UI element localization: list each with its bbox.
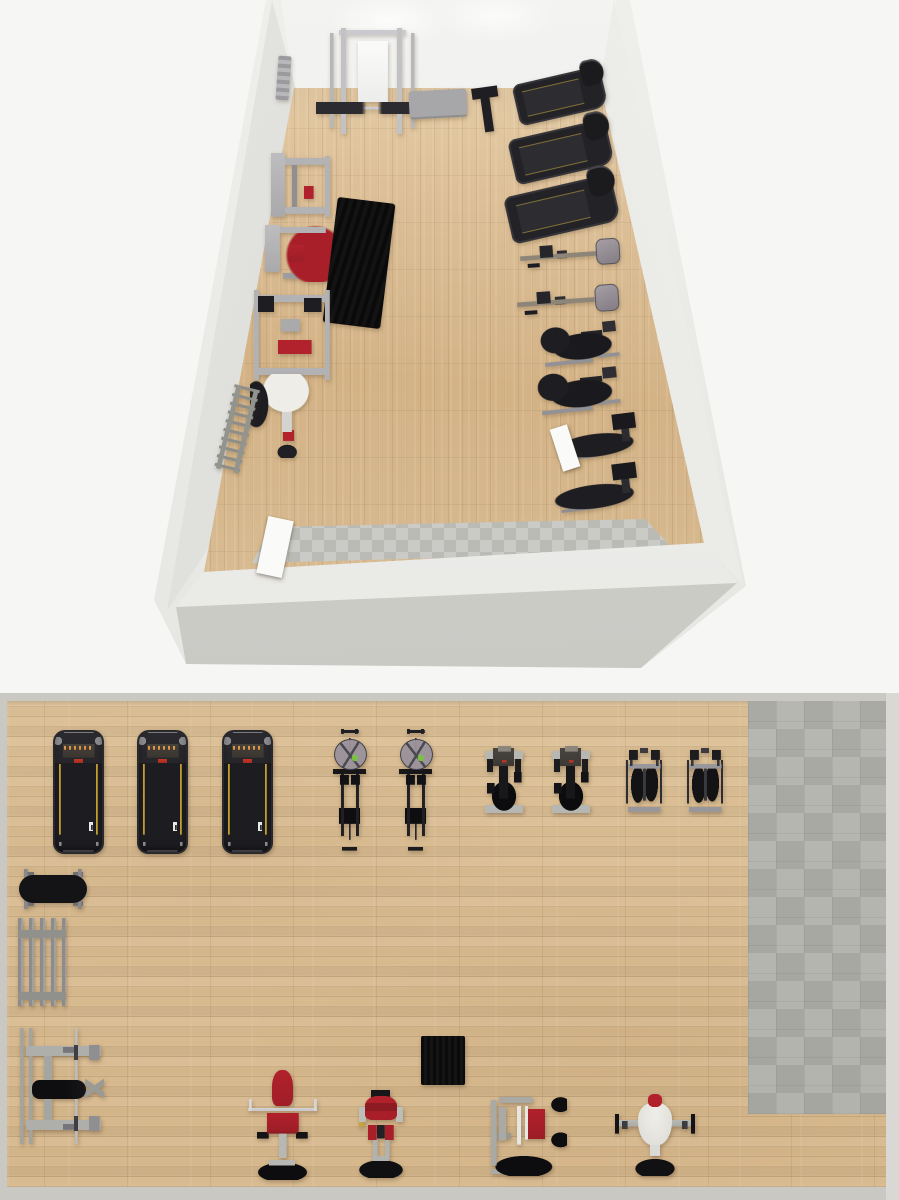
gray-bench: [408, 89, 467, 118]
preacher-curl-machine[interactable]: [248, 1070, 317, 1180]
treadmill-1[interactable]: [53, 730, 104, 854]
rowing-machine-2: [514, 281, 621, 319]
bench-machine: [252, 290, 332, 380]
floor-mat[interactable]: [421, 1036, 465, 1085]
rowing-machine-1: [517, 235, 622, 272]
hack-squat-machine[interactable]: [487, 1092, 567, 1176]
exercise-bike-1: [536, 316, 628, 369]
gym-mat: [323, 197, 396, 329]
lat-machine: [268, 148, 332, 224]
exercise-bike-2: [533, 361, 629, 416]
treadmill-2[interactable]: [137, 730, 188, 854]
room-2d-floor-plan[interactable]: [0, 693, 899, 1200]
power-rack: [328, 28, 416, 134]
equipment-layer-3d: [0, 0, 899, 693]
exercise-bike-2[interactable]: [552, 743, 590, 813]
door-left: [256, 516, 293, 578]
equipment-layer-2d: [0, 693, 899, 1200]
shoulder-machine: [262, 218, 336, 282]
exercise-bike-1[interactable]: [485, 743, 523, 813]
gym-planner-canvas: [0, 0, 899, 1200]
room-3d-view[interactable]: [0, 0, 899, 693]
wall-rack: [275, 56, 291, 101]
wall-bars[interactable]: [18, 918, 66, 1006]
elliptical-1[interactable]: [626, 747, 663, 813]
pec-deck-machine[interactable]: [615, 1094, 695, 1176]
flat-bench[interactable]: [18, 869, 92, 909]
squat-rack-with-bench[interactable]: [19, 1028, 108, 1144]
rowing-machine-1[interactable]: [333, 729, 366, 851]
pec-deck-machine: [250, 374, 312, 458]
elliptical-2[interactable]: [687, 747, 724, 813]
leg-machine[interactable]: [358, 1088, 404, 1178]
treadmill-3[interactable]: [222, 730, 273, 854]
adjustable-bench: [471, 84, 503, 133]
rowing-machine-2[interactable]: [399, 729, 432, 851]
